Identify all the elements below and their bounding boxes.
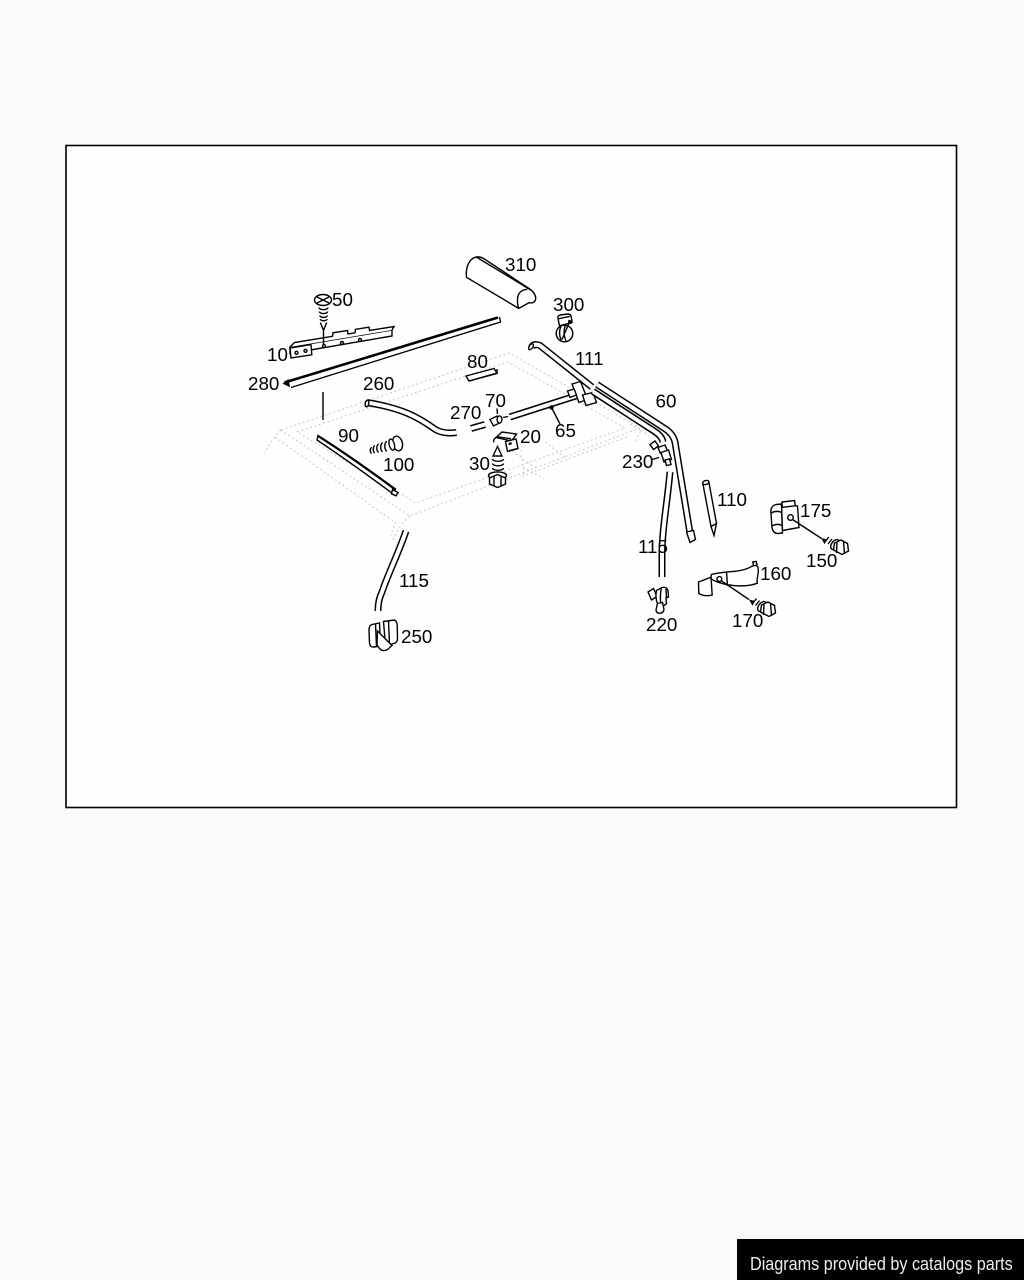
svg-text:115: 115 xyxy=(638,536,668,557)
svg-text:270: 270 xyxy=(450,402,481,423)
svg-text:160: 160 xyxy=(760,563,791,584)
svg-text:10: 10 xyxy=(267,344,288,365)
svg-text:110: 110 xyxy=(717,489,747,510)
svg-text:50: 50 xyxy=(332,289,353,310)
svg-text:100: 100 xyxy=(383,454,414,475)
svg-text:250: 250 xyxy=(401,626,432,647)
svg-text:310: 310 xyxy=(505,254,536,275)
svg-text:260: 260 xyxy=(363,373,394,394)
svg-text:170: 170 xyxy=(732,610,763,631)
svg-text:80: 80 xyxy=(467,351,488,372)
svg-text:300: 300 xyxy=(553,294,584,315)
svg-text:115: 115 xyxy=(399,570,429,591)
svg-text:20: 20 xyxy=(520,426,541,447)
svg-text:150: 150 xyxy=(806,550,837,571)
svg-text:230: 230 xyxy=(622,451,653,472)
svg-text:220: 220 xyxy=(646,614,677,635)
svg-text:60: 60 xyxy=(656,391,677,412)
svg-text:90: 90 xyxy=(338,425,359,446)
svg-text:175: 175 xyxy=(800,500,831,521)
svg-text:30: 30 xyxy=(469,453,490,474)
svg-text:70: 70 xyxy=(485,390,506,411)
svg-text:280: 280 xyxy=(248,373,279,394)
svg-text:111: 111 xyxy=(575,348,604,369)
svg-text:65: 65 xyxy=(555,420,576,441)
